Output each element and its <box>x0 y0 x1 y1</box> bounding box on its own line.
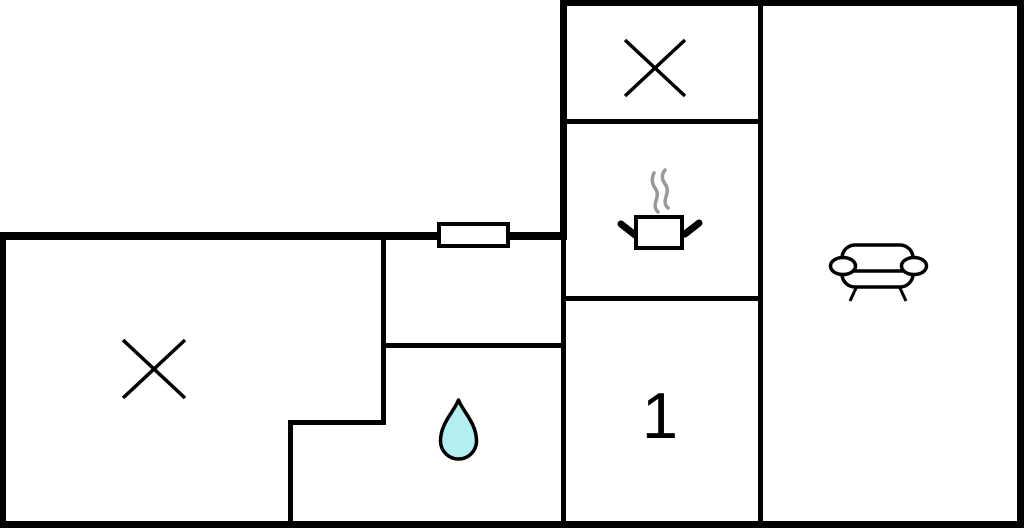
wall-hall-left <box>381 240 386 425</box>
cross-icon <box>622 37 688 99</box>
sofa-icon <box>825 240 930 305</box>
section-divider-wall-lower <box>561 240 566 521</box>
wall-kitchen-room1 <box>566 296 758 301</box>
wall-topright-room-bottom <box>567 119 763 124</box>
wall-hall-bathroom <box>381 343 561 348</box>
section-divider-wall-upper <box>560 0 567 240</box>
floor-plan: 1 <box>0 0 1024 528</box>
cooking-pot-icon <box>615 165 705 255</box>
exterior-wall-top-right <box>560 0 1024 6</box>
exterior-wall-left <box>0 232 6 528</box>
cross-icon <box>120 337 188 401</box>
exterior-wall-right <box>1017 0 1024 528</box>
sofa-armrest-right <box>902 258 927 275</box>
wall-bathroom-step-vertical <box>288 420 293 521</box>
pot-handle-right <box>685 223 699 234</box>
steam-line <box>662 170 668 208</box>
wall-right-column-divider <box>758 6 763 521</box>
window-icon <box>437 222 510 248</box>
exterior-wall-bottom <box>0 521 1024 528</box>
steam-line <box>652 173 658 212</box>
wall-bathroom-step-horizontal <box>288 420 386 425</box>
pot-handle-left <box>621 224 635 235</box>
pot-body <box>636 217 682 248</box>
water-drop-icon <box>435 396 482 465</box>
water-drop-shape <box>441 400 477 459</box>
sofa-armrest-left <box>831 258 856 275</box>
room-1-label: 1 <box>628 387 692 443</box>
